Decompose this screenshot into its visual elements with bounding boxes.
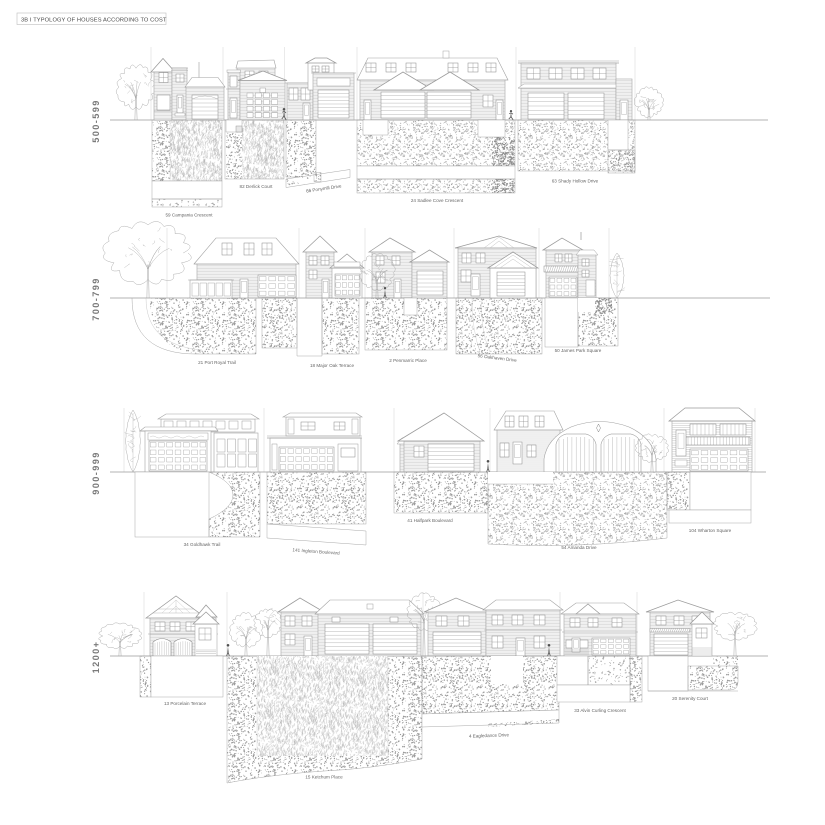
svg-text:700-799: 700-799 <box>91 277 101 321</box>
svg-text:41 Halfpark Boulevard: 41 Halfpark Boulevard <box>407 518 453 523</box>
svg-text:82 Derlick Court: 82 Derlick Court <box>240 184 274 189</box>
svg-text:15 Ketchum Place: 15 Ketchum Place <box>305 775 343 780</box>
svg-text:20 Serenity Court: 20 Serenity Court <box>672 696 708 701</box>
svg-text:34 Goldhawk Trail: 34 Goldhawk Trail <box>184 542 221 547</box>
svg-text:54 Amanda Drive: 54 Amanda Drive <box>561 545 597 550</box>
svg-text:1200+: 1200+ <box>91 641 101 674</box>
svg-text:2 Penmarric Place: 2 Penmarric Place <box>389 358 427 363</box>
svg-text:33 Alvin Curling Crescent: 33 Alvin Curling Crescent <box>574 708 626 713</box>
svg-text:63 Shady Hollow Drive: 63 Shady Hollow Drive <box>552 179 599 184</box>
svg-text:21 Port Royal Trail: 21 Port Royal Trail <box>198 360 236 365</box>
svg-text:59 Campania Crescent: 59 Campania Crescent <box>166 213 214 218</box>
svg-text:3B I TYPOLOGY OF HOUSES ACCORD: 3B I TYPOLOGY OF HOUSES ACCORDING TO COS… <box>21 17 167 23</box>
svg-text:24 Sadlee Cove Crescent: 24 Sadlee Cove Crescent <box>411 198 464 203</box>
svg-text:104 Wharton Square: 104 Wharton Square <box>689 528 732 533</box>
svg-text:50 James Park Square: 50 James Park Square <box>555 348 602 353</box>
svg-text:18 Major Oak Terrace: 18 Major Oak Terrace <box>310 363 355 368</box>
svg-text:13 Porcelain Terrace: 13 Porcelain Terrace <box>164 701 206 706</box>
svg-text:900-999: 900-999 <box>91 451 101 495</box>
svg-text:500-599: 500-599 <box>91 99 101 143</box>
